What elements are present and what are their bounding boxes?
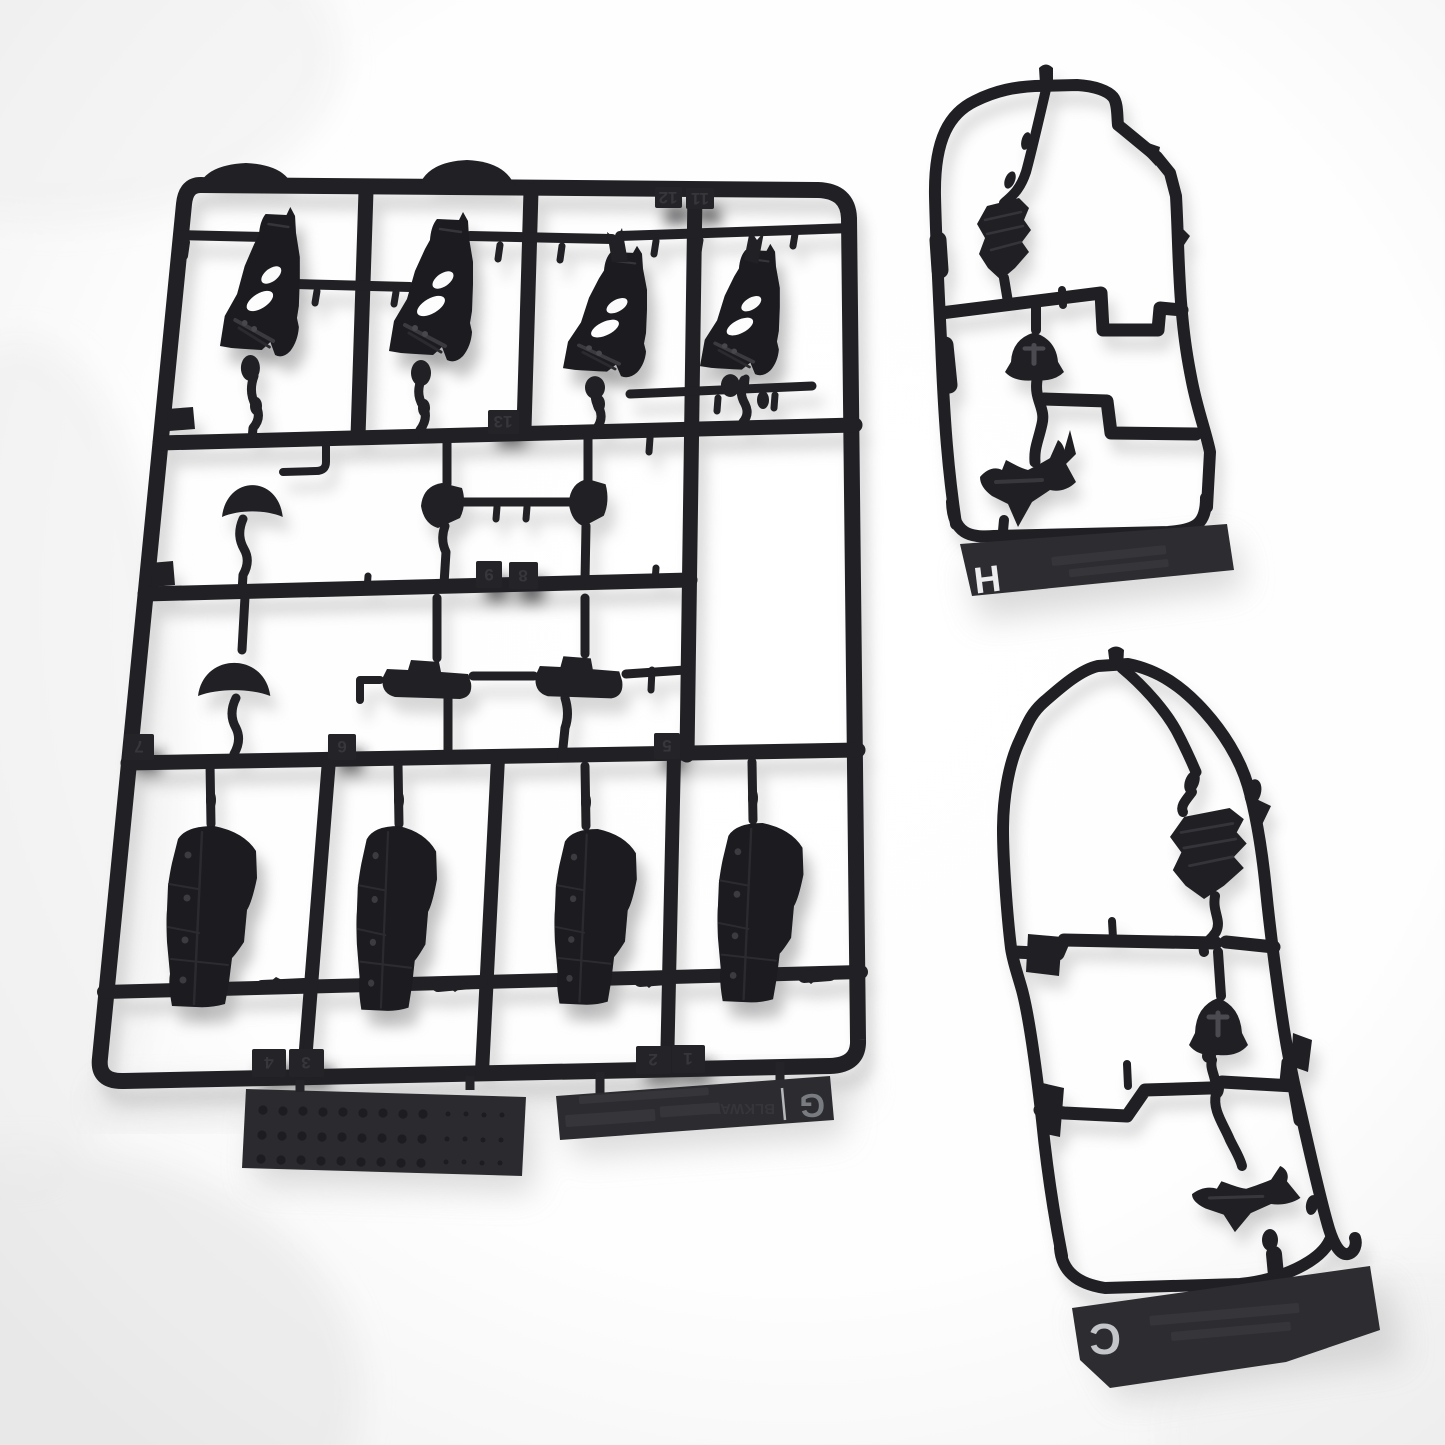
svg-text:C: C [1089, 1314, 1121, 1363]
svg-text:H: H [972, 558, 1004, 602]
svg-text:G: G [799, 1087, 825, 1124]
